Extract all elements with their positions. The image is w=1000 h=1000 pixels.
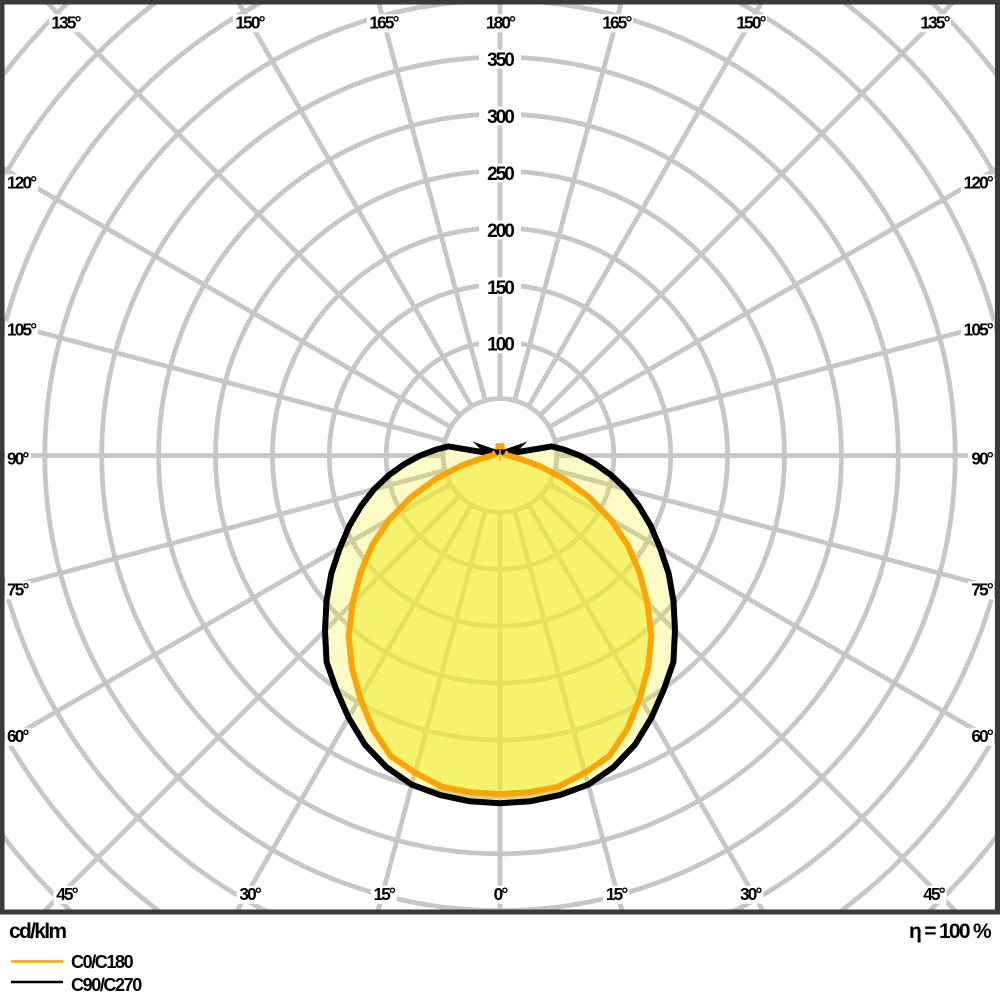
svg-text:150°: 150° (736, 13, 766, 33)
svg-text:150°: 150° (235, 13, 265, 33)
svg-text:cd/klm: cd/klm (9, 920, 66, 943)
svg-text:30°: 30° (239, 884, 262, 904)
svg-text:120°: 120° (964, 173, 994, 193)
svg-text:η = 100 %: η = 100 % (909, 920, 992, 943)
svg-text:135°: 135° (920, 13, 950, 33)
svg-text:150: 150 (487, 278, 514, 299)
svg-text:15°: 15° (374, 884, 397, 904)
svg-text:60°: 60° (7, 726, 30, 746)
svg-text:15°: 15° (606, 884, 629, 904)
svg-text:180°: 180° (486, 13, 516, 33)
svg-text:250: 250 (487, 164, 514, 185)
svg-text:60°: 60° (971, 726, 994, 746)
svg-text:75°: 75° (7, 580, 30, 600)
svg-text:300: 300 (487, 107, 514, 128)
svg-text:0°: 0° (494, 884, 509, 904)
svg-text:165°: 165° (602, 13, 632, 33)
svg-text:120°: 120° (7, 173, 37, 193)
svg-text:135°: 135° (51, 13, 81, 33)
svg-text:90°: 90° (971, 449, 994, 469)
svg-text:30°: 30° (740, 884, 763, 904)
svg-text:165°: 165° (369, 13, 399, 33)
svg-text:350: 350 (487, 50, 514, 71)
svg-text:45°: 45° (56, 884, 79, 904)
svg-text:100: 100 (487, 335, 514, 356)
svg-text:75°: 75° (971, 580, 994, 600)
svg-text:200: 200 (487, 221, 514, 242)
svg-text:C0/C180: C0/C180 (71, 952, 134, 972)
svg-text:90°: 90° (7, 449, 30, 469)
svg-text:105°: 105° (964, 320, 994, 340)
svg-text:105°: 105° (7, 320, 37, 340)
svg-text:C90/C270: C90/C270 (71, 975, 142, 995)
svg-text:45°: 45° (923, 884, 946, 904)
